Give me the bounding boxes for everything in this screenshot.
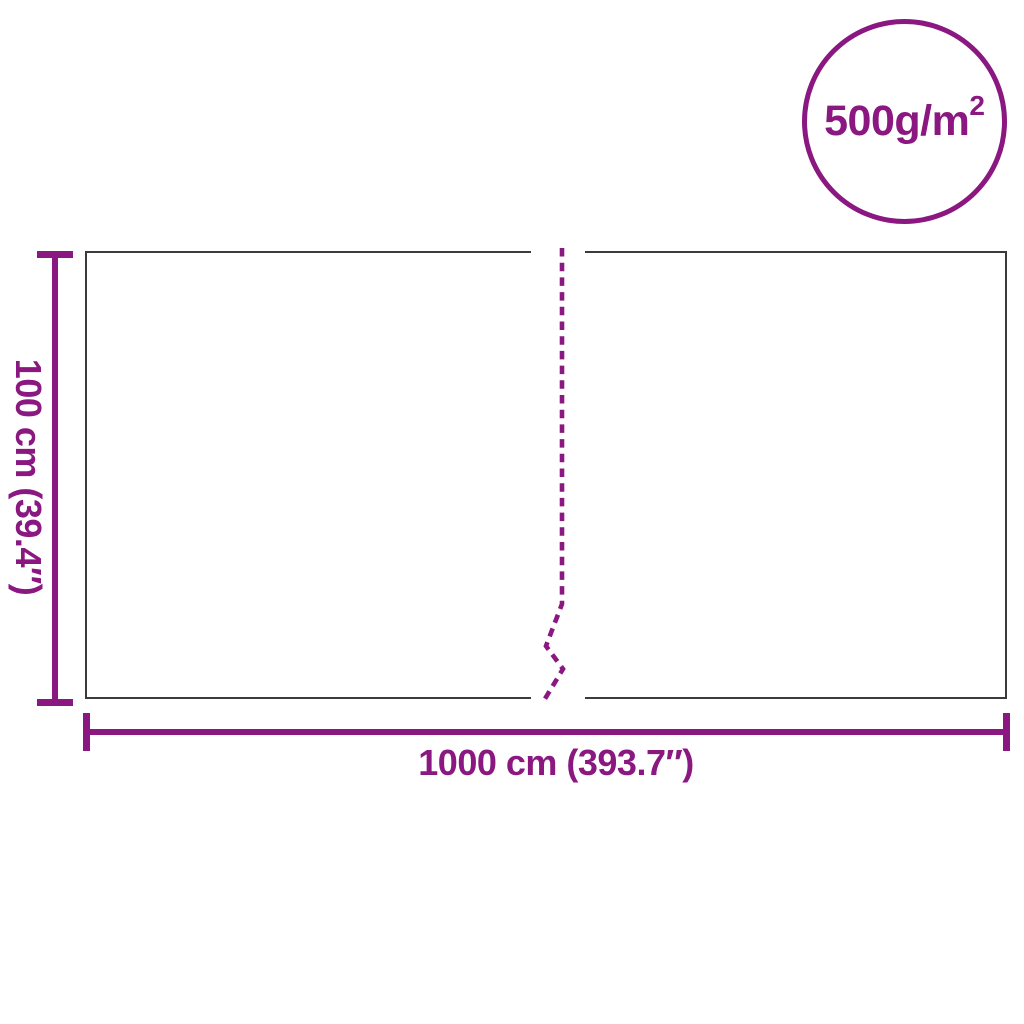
product-dimension-diagram: 100 cm (39.4″) 1000 cm (393.7″) 500g/m2 (0, 0, 1024, 1024)
height-dimension-cap-top (37, 251, 73, 258)
weight-badge-value: 500g/m (824, 100, 969, 143)
weight-badge-superscript: 2 (969, 92, 985, 120)
width-dimension-line (85, 729, 1010, 735)
height-dimension-line (52, 251, 58, 706)
height-dimension-cap-bottom (37, 699, 73, 706)
break-dashed-line (520, 240, 600, 710)
weight-badge: 500g/m2 (802, 19, 1007, 224)
width-dimension-cap-right (1003, 713, 1010, 751)
height-dimension-label: 100 cm (39.4″) (7, 359, 49, 595)
width-dimension-cap-left (83, 713, 90, 751)
width-dimension-label: 1000 cm (393.7″) (418, 742, 693, 784)
